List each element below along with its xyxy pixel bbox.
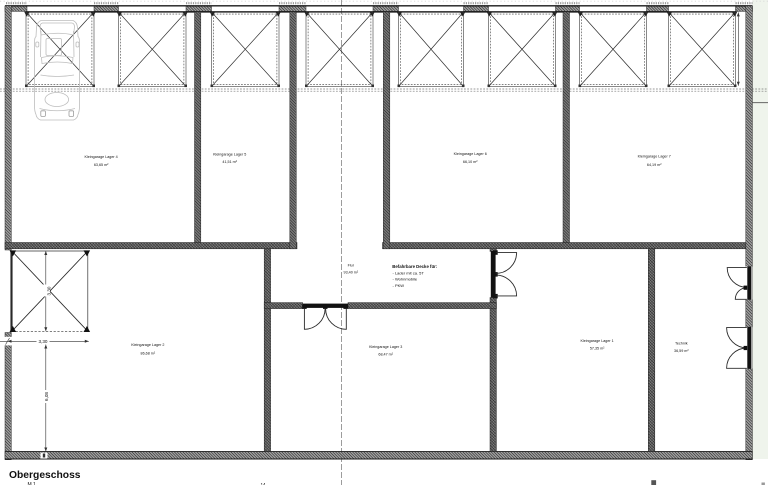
svg-text:Kleingarage Lager 6: Kleingarage Lager 6 xyxy=(454,152,487,156)
svg-text:- PKW: - PKW xyxy=(393,283,405,288)
svg-text:63,65 m²: 63,65 m² xyxy=(94,163,109,167)
svg-text:3,30: 3,30 xyxy=(39,339,48,344)
svg-text:Befahrbare Decke für:: Befahrbare Decke für: xyxy=(392,264,437,269)
svg-text:86,68 m²: 86,68 m² xyxy=(141,352,156,356)
svg-text:Technik: Technik xyxy=(675,342,688,346)
svg-text:6,08: 6,08 xyxy=(44,392,49,401)
svg-text:Kleingarage Lager 5: Kleingarage Lager 5 xyxy=(213,153,246,157)
svg-text:36,59 m²: 36,59 m² xyxy=(674,349,689,353)
svg-text:3,30: 3,30 xyxy=(47,286,52,295)
svg-text:66,10 m²: 66,10 m² xyxy=(463,160,478,164)
svg-text:Kleingarage Lager 2: Kleingarage Lager 2 xyxy=(131,343,164,347)
svg-text:68,47 m²: 68,47 m² xyxy=(378,353,393,357)
svg-text:- Lader mit ca. 5T: - Lader mit ca. 5T xyxy=(393,270,425,275)
svg-text:Kleingarage Lager 3: Kleingarage Lager 3 xyxy=(369,345,402,349)
svg-text:Kleingarage Lager 7: Kleingarage Lager 7 xyxy=(638,155,671,159)
svg-text:57,35 m²: 57,35 m² xyxy=(590,347,605,351)
svg-text:93,40 m²: 93,40 m² xyxy=(344,271,359,275)
svg-text:Kleingarage Lager 4: Kleingarage Lager 4 xyxy=(84,155,117,159)
svg-text:Kleingarage Lager 1: Kleingarage Lager 1 xyxy=(580,339,613,343)
svg-text:Flur: Flur xyxy=(348,264,355,268)
svg-text:- Wohnmobile: - Wohnmobile xyxy=(393,277,418,282)
svg-text:41,51 m²: 41,51 m² xyxy=(222,160,237,164)
svg-text:Obergeschoss: Obergeschoss xyxy=(9,470,81,481)
svg-text:64,19 m²: 64,19 m² xyxy=(647,163,662,167)
